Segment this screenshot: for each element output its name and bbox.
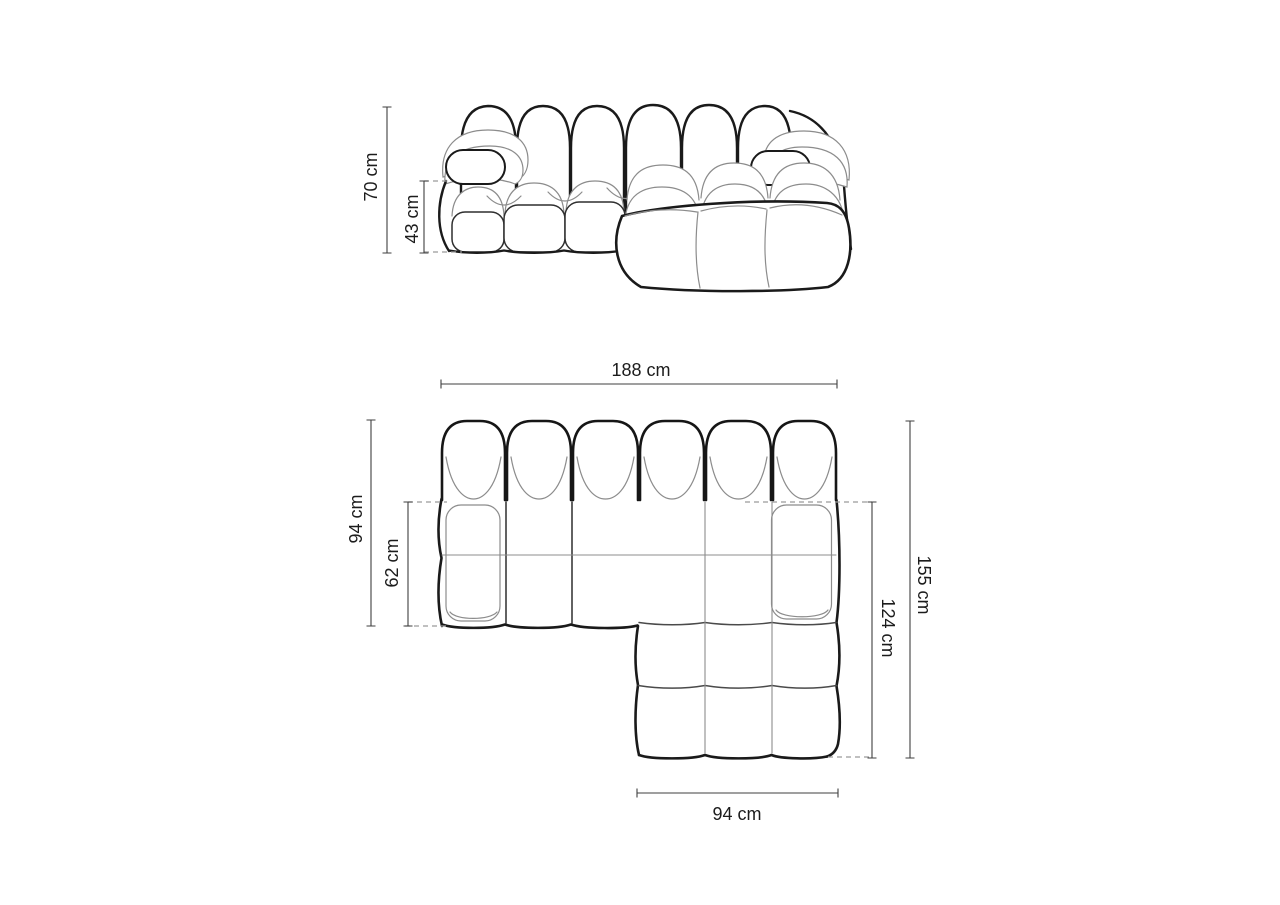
dimension-line — [637, 789, 838, 798]
armrest-pads-top — [446, 505, 832, 621]
dimension-label-chaise-depth: 124 cm — [878, 598, 898, 657]
chaise-bottom-edge — [639, 755, 827, 758]
left-armrest-dip — [450, 612, 497, 618]
chaise-seam-horizontal — [639, 623, 836, 625]
front-edge-left-section — [442, 625, 638, 629]
backrest-module — [640, 421, 704, 500]
dimension-line — [441, 380, 837, 389]
chaise-left-edge — [635, 626, 639, 755]
armrest-roll — [446, 150, 505, 184]
dimension-label-seat-depth: 62 cm — [382, 538, 402, 587]
dimension-label-right-total-depth: 155 cm — [914, 555, 934, 614]
left-edge — [439, 499, 443, 626]
seat-cushion — [452, 212, 504, 252]
dimension-label-chaise-width: 94 cm — [712, 804, 761, 824]
dimension-label-total-height: 70 cm — [361, 152, 381, 201]
dimension-line — [404, 502, 413, 626]
dimension-line — [868, 502, 877, 758]
backrest-module — [706, 421, 771, 500]
dimension-label-left-depth: 94 cm — [346, 494, 366, 543]
dimension-right-total-depth: 155 cm — [906, 421, 935, 758]
plan-seams — [442, 502, 837, 753]
diagram-canvas: 70 cm 43 cm — [0, 0, 1280, 905]
dimension-line — [383, 107, 392, 253]
sofa-top-plan: 188 cm 94 cm 62 cm 155 cm 124 cm 94 cm — [346, 360, 934, 824]
dimension-left-depth: 94 cm — [346, 420, 376, 626]
chaise-front — [616, 201, 850, 291]
dimension-line — [367, 420, 376, 626]
dimension-line — [906, 421, 915, 758]
right-edge — [827, 500, 840, 757]
backrest-module — [507, 421, 571, 500]
backrest-module — [573, 421, 638, 500]
right-armrest-dip — [776, 610, 828, 617]
dimension-label-seat-height: 43 cm — [402, 194, 422, 243]
dimension-total-width: 188 cm — [441, 360, 837, 389]
backrest-module — [773, 421, 836, 500]
seat-cushion — [504, 205, 565, 252]
dimension-total-height: 70 cm — [361, 107, 392, 253]
backrest-modules-top — [442, 421, 836, 500]
right-armrest-pad — [772, 505, 832, 619]
dimension-chaise-width: 94 cm — [637, 789, 838, 825]
armrest-side — [439, 181, 449, 251]
dimension-label-total-width: 188 cm — [611, 360, 670, 380]
backrest-module — [442, 421, 505, 500]
chaise-body — [616, 201, 850, 291]
dimension-seat-depth: 62 cm — [382, 502, 413, 626]
dimension-seat-height: 43 cm — [402, 181, 429, 253]
dimension-chaise-depth: 124 cm — [868, 502, 899, 758]
sofa-dimension-diagram: 70 cm 43 cm — [0, 0, 1280, 905]
sofa-front-elevation: 70 cm 43 cm — [361, 105, 851, 291]
chaise-seam-horizontal — [638, 686, 837, 689]
left-armrest-pad — [446, 505, 500, 621]
plan-outline — [439, 499, 840, 758]
